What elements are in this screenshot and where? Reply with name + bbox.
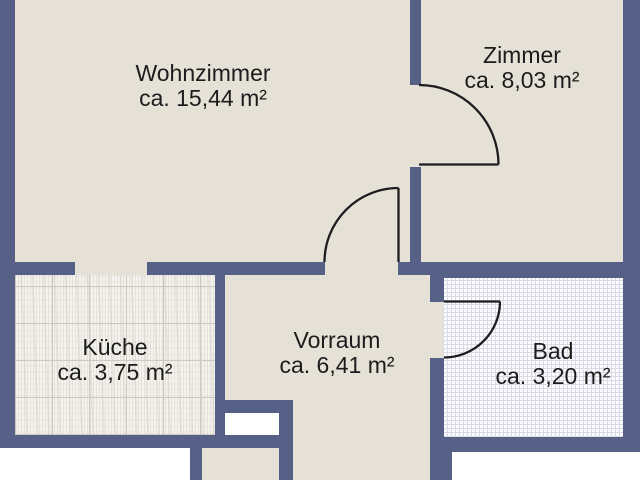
- wall-shaft-top: [215, 400, 293, 413]
- wall-kueche-bottom: [0, 435, 293, 448]
- wall-outer-right: [623, 0, 640, 452]
- wall-mid-right: [398, 262, 430, 275]
- wall-wohnzimmer-zimmer-upper: [410, 0, 421, 85]
- wall-mid-left: [15, 262, 75, 275]
- wall-outer-left: [0, 0, 15, 448]
- wall-corridor-left: [190, 448, 202, 480]
- floor-corridor: [202, 448, 279, 480]
- shaft-opening: [225, 413, 279, 435]
- outside-bottom-right: [452, 450, 640, 480]
- outside-bottom-left: [0, 448, 190, 480]
- wall-bad-left-lower: [430, 358, 444, 437]
- wall-bad-top: [430, 262, 623, 278]
- bad-tile-floor: [443, 278, 623, 437]
- wall-mid-center: [147, 262, 325, 275]
- kueche-tile-floor: [15, 275, 215, 435]
- wall-bad-bottom: [430, 437, 640, 452]
- wall-wohnzimmer-zimmer-lower: [410, 167, 421, 262]
- floor-plan: Wohnzimmer ca. 15,44 m² Zimmer ca. 8,03 …: [0, 0, 640, 480]
- floor-vorraum-extension: [293, 448, 430, 480]
